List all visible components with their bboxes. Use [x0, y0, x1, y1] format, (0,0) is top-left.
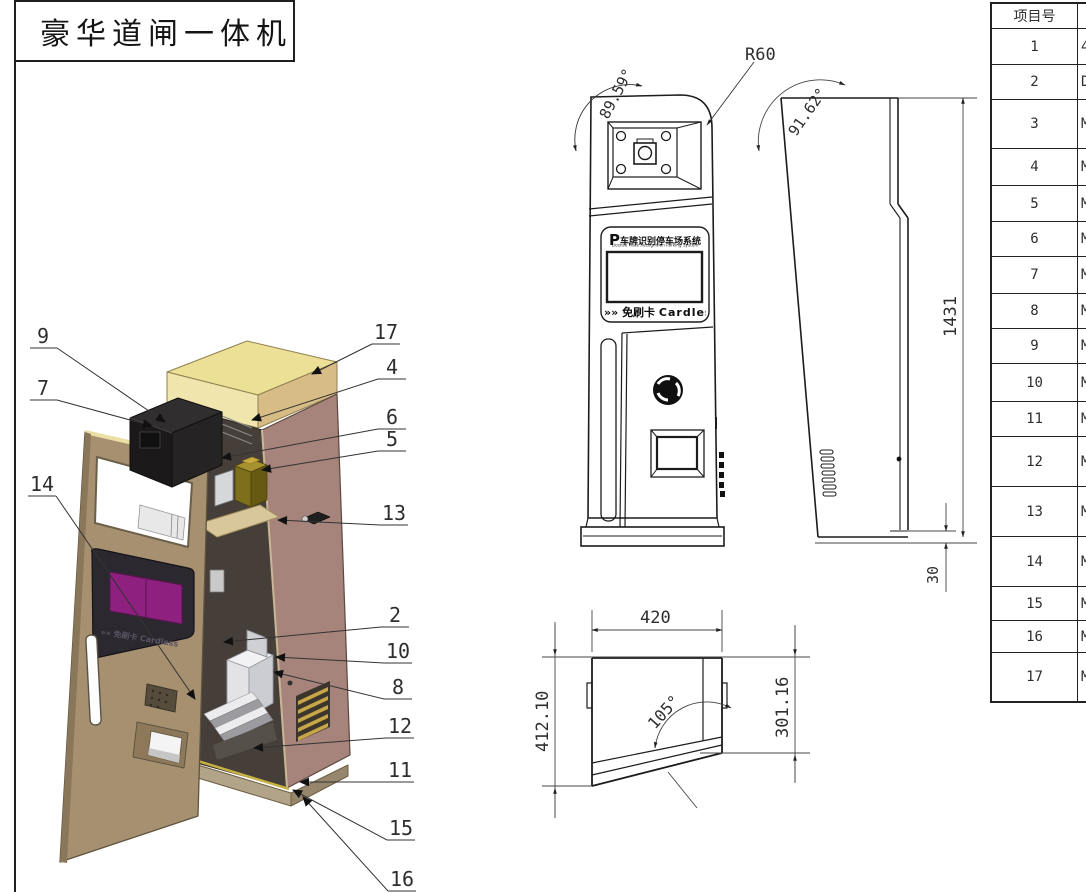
- sign-tagline: »» 免刷卡 Cardless: [604, 304, 706, 320]
- callout-10: 10: [386, 641, 410, 661]
- dim-front-angle: 89.59°: [596, 66, 637, 122]
- table-row: 14M: [992, 536, 1086, 586]
- bom-header-part: [1078, 4, 1086, 28]
- bom-header-row: 项目号: [992, 4, 1086, 28]
- table-row: 5M: [992, 185, 1086, 221]
- callout-4: 4: [386, 357, 398, 377]
- tagline-cn: 免刷卡: [622, 306, 655, 319]
- table-row: 4M: [992, 148, 1086, 185]
- callout-16: 16: [390, 869, 414, 889]
- callout-11: 11: [388, 760, 412, 780]
- table-row: 12M: [992, 436, 1086, 486]
- dim-height: 1431: [941, 296, 961, 337]
- drawing-canvas: R60 89.59° 91.62° 1431 30 420 412.10 301…: [0, 0, 1086, 892]
- callout-17: 17: [374, 322, 398, 342]
- table-row: 16M: [992, 620, 1086, 652]
- callout-14: 14: [30, 474, 54, 494]
- dimension-texts: R60 89.59° 91.62° 1431 30 420 412.10 301…: [533, 45, 961, 752]
- table-row: 10M: [992, 363, 1086, 401]
- table-row: 11M: [992, 401, 1086, 436]
- dim-width: 420: [640, 608, 671, 628]
- table-row: 17M: [992, 652, 1086, 701]
- callout-7: 7: [37, 378, 49, 398]
- exploded-3d-view: [60, 341, 350, 863]
- dim-base-height: 30: [924, 566, 942, 584]
- table-row: 13M: [992, 486, 1086, 536]
- callout-15: 15: [389, 818, 413, 838]
- relay-box: [215, 470, 233, 506]
- table-row: 14: [992, 28, 1086, 64]
- side-vents: [820, 450, 836, 496]
- bom-header-itemno: 项目号: [992, 4, 1078, 28]
- table-row: 8M: [992, 293, 1086, 328]
- dim-top-angle: 105°: [644, 691, 684, 732]
- dim-left-depth: 412.10: [533, 691, 553, 752]
- dim-side-angle: 91.62°: [785, 85, 831, 140]
- drawing-frame-border: [14, 60, 16, 892]
- table-row: 2D: [992, 64, 1086, 99]
- tagline-en: Cardless: [659, 306, 706, 319]
- side-buttons: [719, 452, 725, 497]
- table-row: 15M: [992, 586, 1086, 620]
- callout-12: 12: [388, 716, 412, 736]
- top-view-dims: [542, 610, 810, 818]
- callout-6: 6: [386, 407, 398, 427]
- table-row: 6M: [992, 221, 1086, 256]
- drawing-title: 豪华道闸一体机: [40, 9, 292, 53]
- front-view-drawing: [581, 95, 725, 546]
- callout-5: 5: [386, 429, 398, 449]
- title-block: 豪华道闸一体机: [14, 0, 295, 62]
- table-row: 3M: [992, 99, 1086, 148]
- callout-9: 9: [37, 326, 49, 346]
- side-view-drawing: [781, 98, 908, 537]
- dim-r60: R60: [745, 45, 776, 65]
- callout-13: 13: [382, 503, 406, 523]
- dim-right-depth: 301.16: [773, 677, 793, 738]
- table-row: 7M: [992, 256, 1086, 293]
- callout-8: 8: [392, 677, 404, 697]
- table-row: 9M: [992, 328, 1086, 363]
- sign-brand-en: License Plate Recognition Parking System: [604, 243, 706, 248]
- engineering-drawing-page: { "title_block": { "title": "豪华道闸一体机" },…: [0, 0, 1086, 892]
- callout-2: 2: [389, 605, 401, 625]
- tagline-arrows-icon2: »: [611, 306, 618, 319]
- bom-table: 项目号 14 2D 3M 4M 5M 6M 7M 8M 9M 10M 11M 1…: [990, 2, 1086, 703]
